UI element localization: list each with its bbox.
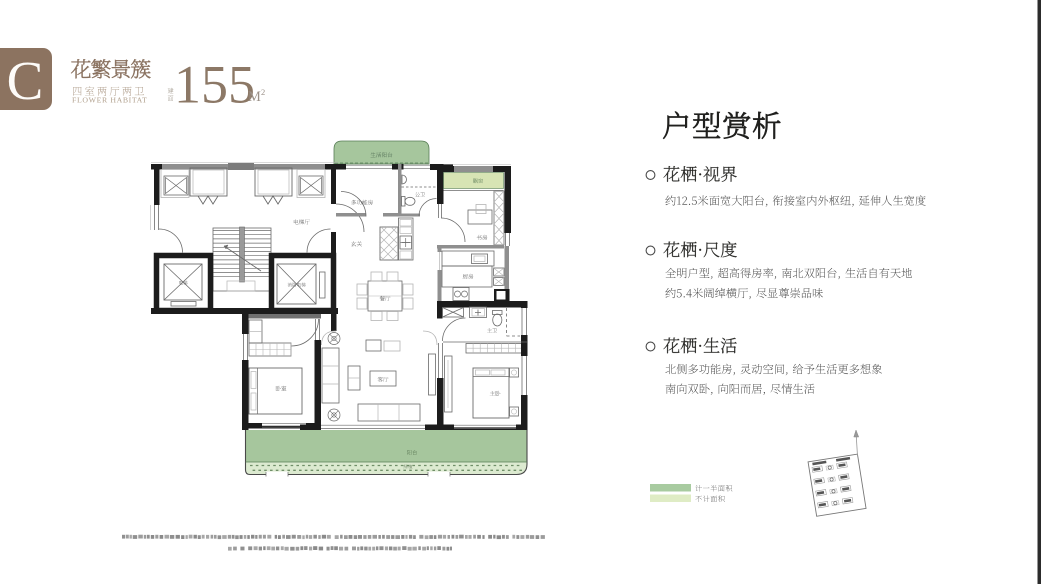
svg-text:155: 155 — [174, 54, 255, 114]
svg-text:M: M — [248, 89, 261, 105]
svg-text:FLOWER HABITAT: FLOWER HABITAT — [72, 96, 147, 105]
svg-text:C: C — [7, 50, 44, 111]
svg-text:2: 2 — [261, 87, 265, 97]
